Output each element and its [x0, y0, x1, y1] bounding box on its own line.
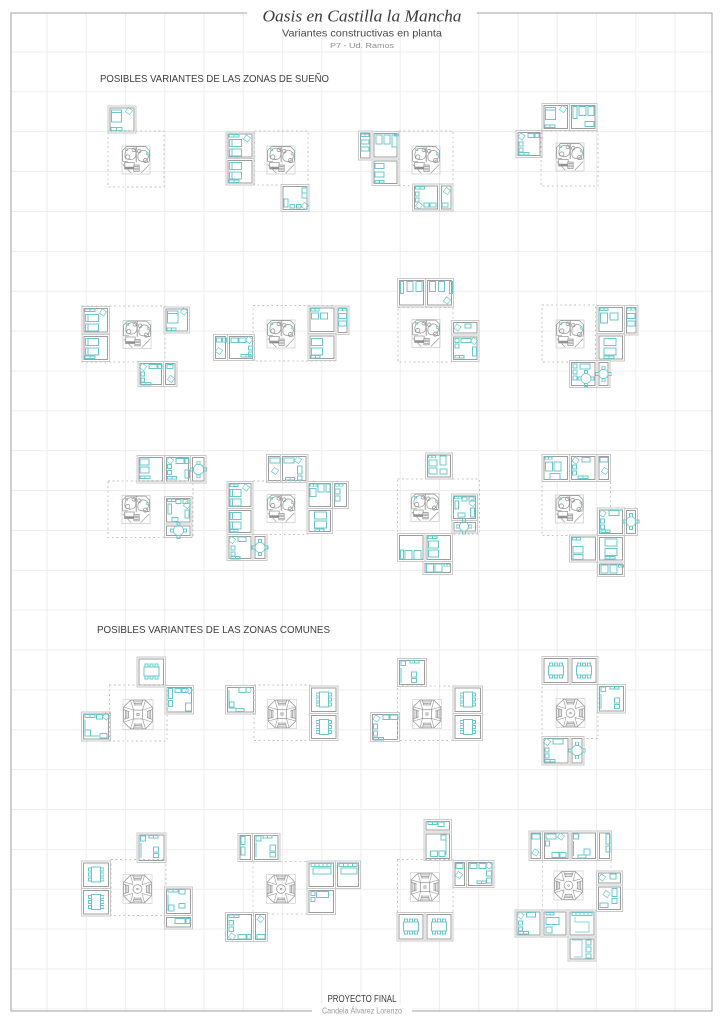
svg-text:Candela Álvarez Lorenzo: Candela Álvarez Lorenzo [322, 1007, 402, 1016]
svg-text:PROYECTO FINAL: PROYECTO FINAL [328, 993, 397, 1005]
svg-text:POSIBLES VARIANTES DE LAS ZONA: POSIBLES VARIANTES DE LAS ZONAS COMUNES [97, 624, 330, 636]
svg-text:P7 - Ud. Ramos: P7 - Ud. Ramos [330, 41, 394, 50]
svg-text:Oasis en Castilla la Mancha: Oasis en Castilla la Mancha [263, 7, 462, 26]
svg-text:POSIBLES VARIANTES DE LAS ZONA: POSIBLES VARIANTES DE LAS ZONAS DE SUEÑO [100, 72, 329, 85]
svg-text:Variantes constructivas en pla: Variantes constructivas en planta [282, 28, 442, 40]
